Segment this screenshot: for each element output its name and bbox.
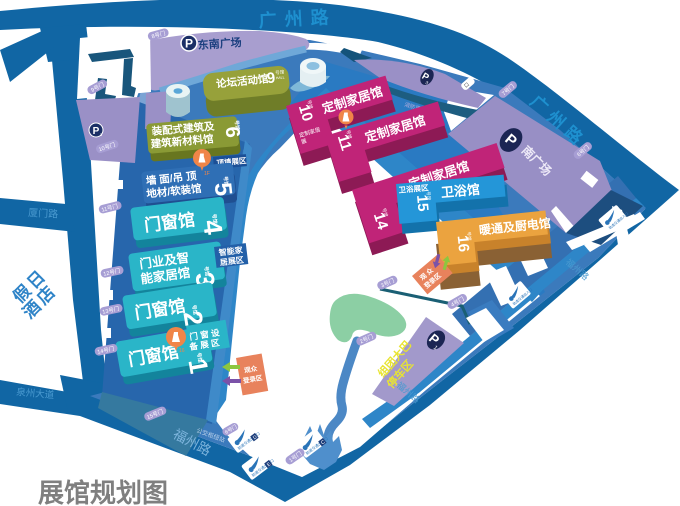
svg-text:号馆: 号馆 — [203, 266, 211, 277]
svg-text:展馆规划图: 展馆规划图 — [38, 478, 168, 506]
svg-text:号馆: 号馆 — [233, 120, 241, 131]
svg-text:号馆: 号馆 — [210, 213, 218, 224]
svg-text:P: P — [93, 126, 100, 137]
svg-text:P: P — [185, 37, 193, 51]
svg-text:广州路: 广州路 — [258, 6, 337, 31]
svg-text:1F: 1F — [204, 171, 210, 177]
svg-text:16: 16 — [179, 348, 185, 354]
svg-text:号馆: 号馆 — [222, 176, 230, 187]
